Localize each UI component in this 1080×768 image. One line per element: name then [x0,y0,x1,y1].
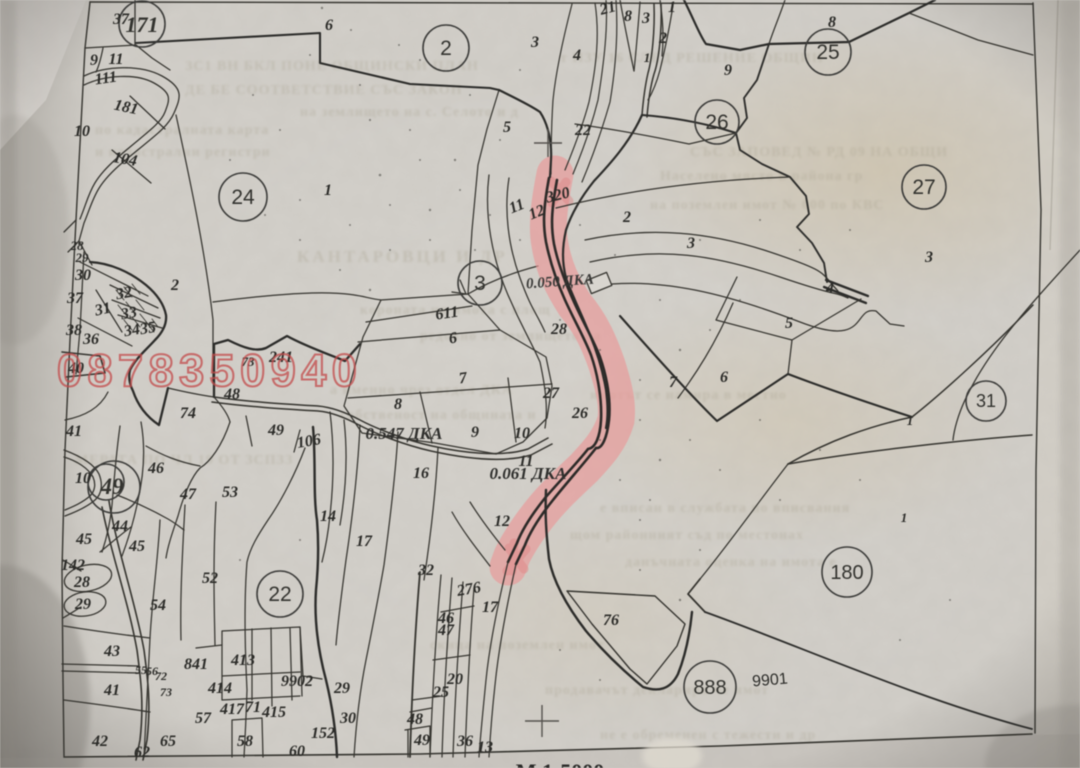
svg-text:30: 30 [74,267,91,284]
svg-text:31: 31 [976,391,996,411]
svg-text:10: 10 [514,425,530,442]
svg-text:413: 413 [230,652,255,669]
svg-text:25: 25 [816,41,839,64]
svg-text:по кадастралната карта: по кадастралната карта [95,123,269,138]
svg-text:44: 44 [111,518,128,535]
svg-text:3: 3 [686,235,695,252]
svg-text:1: 1 [668,0,676,16]
svg-text:не е обременен с тежести и др: не е обременен с тежести и др [600,728,816,743]
svg-text:43: 43 [103,643,120,660]
svg-text:888: 888 [693,677,726,699]
svg-text:36: 36 [456,733,473,750]
svg-text:1: 1 [901,510,908,525]
svg-text:29: 29 [74,596,91,613]
svg-text:17: 17 [356,533,373,550]
svg-text:собственост на общината и: собственост на общината и [340,408,537,423]
svg-text:9901: 9901 [751,670,788,690]
svg-text:27: 27 [542,385,560,402]
svg-text:62: 62 [134,744,150,761]
svg-text:6: 6 [720,369,728,386]
svg-text:76: 76 [603,612,619,629]
svg-text:29: 29 [75,250,90,265]
svg-text:данъчната оценка на имота е: данъчната оценка на имота е [625,555,837,570]
svg-text:е вписан в службата по вписван: е вписан в службата по вписвания [600,501,850,516]
svg-text:74: 74 [180,405,196,422]
svg-text:2: 2 [170,277,179,294]
svg-text:2: 2 [658,30,667,47]
svg-text:38: 38 [65,322,82,339]
svg-text:3: 3 [641,10,650,27]
svg-text:30: 30 [339,710,356,727]
svg-text:27: 27 [912,176,935,199]
svg-text:9902: 9902 [281,673,313,690]
svg-text:53: 53 [222,484,238,501]
svg-text:3: 3 [924,249,933,266]
svg-text:10: 10 [74,123,90,140]
svg-text:9: 9 [471,424,479,441]
svg-text:29: 29 [333,680,350,697]
svg-text:8: 8 [624,8,632,25]
svg-text:111: 111 [94,69,118,89]
svg-text:73: 73 [160,685,172,699]
svg-text:11: 11 [518,453,533,470]
svg-text:3: 3 [474,272,486,295]
svg-text:2: 2 [440,37,452,60]
svg-text:1: 1 [644,50,651,65]
svg-text:9: 9 [724,62,732,79]
svg-text:4: 4 [572,47,581,64]
svg-text:5: 5 [503,119,511,136]
svg-text:52: 52 [202,570,218,587]
svg-text:41: 41 [103,682,120,699]
svg-text:1: 1 [907,413,914,428]
svg-text:58: 58 [237,733,253,750]
svg-text:49: 49 [100,474,125,499]
svg-text:2: 2 [622,209,631,226]
svg-text:6: 6 [325,17,333,34]
svg-text:12: 12 [494,513,510,530]
svg-text:41: 41 [65,423,82,440]
svg-text:5: 5 [785,315,793,332]
svg-text:13: 13 [477,739,493,756]
svg-text:42: 42 [91,733,108,750]
svg-text:28: 28 [550,321,567,338]
svg-text:48: 48 [406,711,423,728]
svg-text:щом районният съд по местонах: щом районният съд по местонах [570,528,804,543]
svg-text:26: 26 [705,111,728,134]
svg-text:417: 417 [219,701,245,718]
svg-text:7: 7 [669,374,678,391]
svg-text:скица на поземлен имот: скица на поземлен имот [430,638,605,653]
svg-text:на поземлен имот № 000 по КВС: на поземлен имот № 000 по КВС [650,198,885,213]
svg-text:180: 180 [830,562,863,584]
svg-text:4: 4 [825,280,834,297]
svg-text:СЪС ЗАПОВЕД № РД 09 НА ОБЩИ: СЪС ЗАПОВЕД № РД 09 НА ОБЩИ [690,145,948,160]
svg-text:611: 611 [434,303,459,323]
svg-text:3: 3 [530,34,539,51]
svg-text:37: 37 [112,11,130,28]
svg-text:10: 10 [75,470,91,487]
svg-text:414: 414 [207,680,232,697]
svg-text:1: 1 [324,182,332,199]
svg-text:65: 65 [160,733,176,750]
svg-text:32: 32 [114,284,134,304]
svg-text:45: 45 [75,531,92,548]
svg-text:152: 152 [311,725,335,742]
svg-text:54: 54 [150,597,166,614]
svg-text:26: 26 [571,405,588,422]
svg-text:37: 37 [66,290,84,307]
svg-text:35: 35 [138,319,158,339]
svg-text:22: 22 [574,122,591,139]
svg-text:142: 142 [61,557,85,574]
svg-text:72: 72 [155,669,167,683]
svg-text:22: 22 [268,583,291,606]
svg-text:71: 71 [245,699,261,716]
svg-text:28: 28 [73,574,90,591]
svg-text:171: 171 [126,12,159,37]
svg-text:46: 46 [147,460,164,477]
svg-text:16: 16 [413,465,429,482]
svg-text:на землището на с. Селото и д: на землището на с. Селото и д [300,105,519,120]
svg-text:Населено място в района гр: Населено място в района гр [660,169,863,184]
svg-text:57: 57 [195,710,212,727]
svg-text:17: 17 [482,599,499,616]
svg-text:47: 47 [437,622,455,639]
svg-text:14: 14 [320,508,336,525]
svg-text:0878350940: 0878350940 [57,345,362,396]
svg-text:45: 45 [128,538,145,555]
svg-text:60: 60 [289,743,305,760]
svg-text:МЕРАТА ПО ЧЛ 19 ОТ ЗСПЗЗ: МЕРАТА ПО ЧЛ 19 ОТ ЗСПЗЗ [75,453,293,468]
svg-text:КАНТАРОВЦИ И ДР: КАНТАРОВЦИ И ДР [297,247,508,266]
svg-text:47: 47 [179,486,197,503]
svg-text:841: 841 [184,656,208,673]
svg-text:25: 25 [432,684,449,701]
svg-text:М 1:5000: М 1:5000 [516,759,605,768]
svg-text:т ПЗУ 16 СЛЕД РЕШЕНИЕ ОБЩИН: т ПЗУ 16 СЛЕД РЕШЕНИЕ ОБЩИН [560,51,824,66]
svg-text:32: 32 [417,562,434,579]
svg-text:24: 24 [231,186,255,209]
svg-text:415: 415 [261,704,286,721]
svg-text:0.547 ДКА: 0.547 ДКА [366,424,443,443]
svg-text:31: 31 [92,300,112,320]
svg-text:8: 8 [394,396,402,413]
svg-text:8: 8 [828,14,836,31]
svg-text:49: 49 [413,732,430,749]
svg-text:49: 49 [267,422,284,439]
svg-text:9: 9 [90,52,98,69]
svg-text:11: 11 [108,51,123,68]
